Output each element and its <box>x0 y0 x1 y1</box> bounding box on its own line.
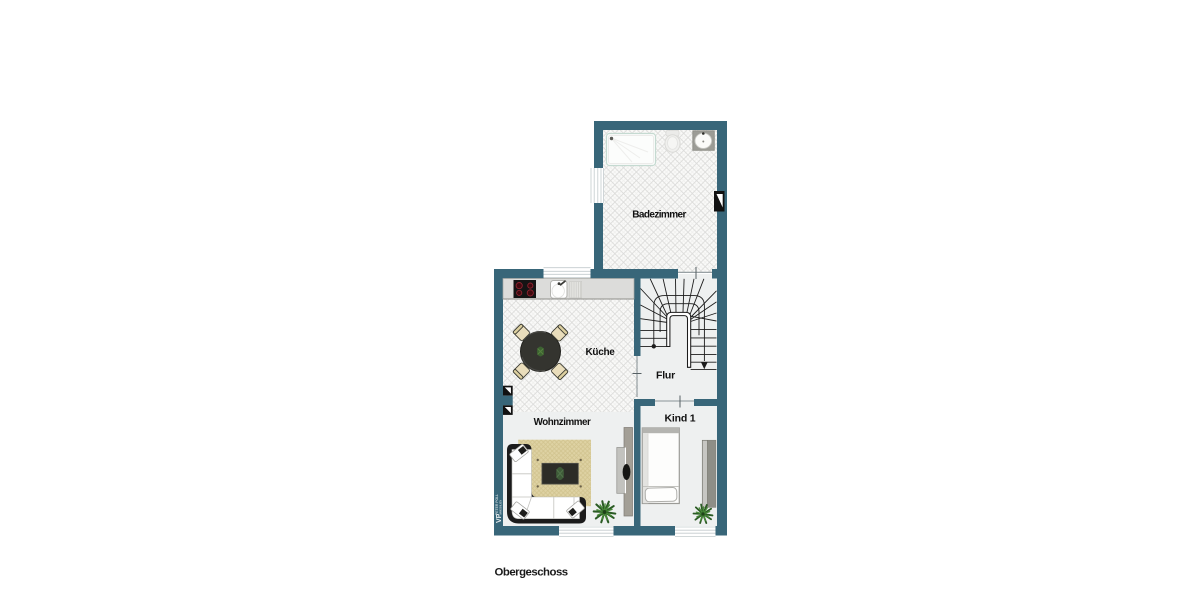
svg-text:Flur: Flur <box>656 370 675 382</box>
svg-text:PETER POLL: PETER POLL <box>495 494 499 515</box>
svg-text:Wohnzimmer: Wohnzimmer <box>534 417 591 428</box>
svg-text:Küche: Küche <box>585 347 615 358</box>
svg-text:Kind 1: Kind 1 <box>665 413 696 425</box>
svg-text:Obergeschoss: Obergeschoss <box>495 567 568 579</box>
svg-text:IMMOBILIEN: IMMOBILIEN <box>498 500 502 515</box>
svg-text:Badezimmer: Badezimmer <box>632 210 686 221</box>
